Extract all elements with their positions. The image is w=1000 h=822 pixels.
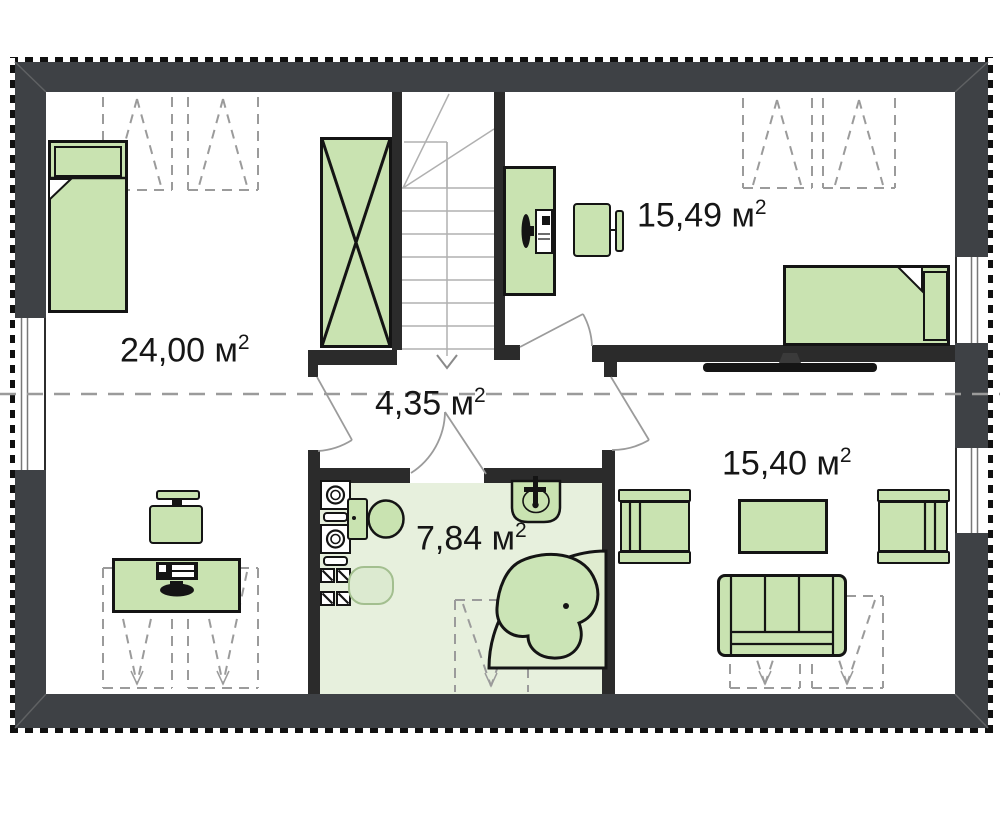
room-area-label-bathroom: 7,84 м2 xyxy=(416,520,527,555)
armchair-backrest-lines xyxy=(630,503,935,551)
room-area-label-bedroom-right: 15,49 м2 xyxy=(637,197,767,232)
area-value: 24,00 м xyxy=(120,331,238,369)
tile-diagonals xyxy=(323,571,349,604)
computer-icon-right-desk xyxy=(522,210,617,253)
door-swing-living-room xyxy=(611,377,649,450)
toilet-bowl xyxy=(352,501,404,538)
area-value: 15,40 м xyxy=(722,444,840,482)
sink xyxy=(512,476,560,522)
room-area-label-living-room: 15,40 м2 xyxy=(722,445,852,480)
window-right-lower xyxy=(956,448,978,533)
area-value: 4,35 м xyxy=(375,384,474,422)
area-value: 15,49 м xyxy=(637,196,755,234)
bed-left-blanket-fold xyxy=(49,178,127,200)
computer-icon-left-desk xyxy=(156,499,198,597)
sofa-cushion-lines xyxy=(731,576,833,655)
corner-bathtub xyxy=(489,551,606,668)
overlay-linework xyxy=(0,0,1000,822)
room-area-label-bedroom-left: 24,00 м2 xyxy=(120,332,250,367)
washing-machine-drums xyxy=(327,487,344,548)
door-swing-bedroom-right xyxy=(520,314,592,347)
tv-stand xyxy=(779,353,801,363)
area-value: 7,84 м xyxy=(416,519,515,557)
window-right-upper xyxy=(956,257,978,343)
ghost-fixture xyxy=(349,567,393,604)
room-area-label-hall: 4,35 м2 xyxy=(375,385,486,420)
floor-plan: 24,00 м2 15,49 м2 4,35 м2 7,84 м2 15,40 … xyxy=(0,0,1000,822)
door-swing-bedroom-left xyxy=(317,377,352,451)
wardrobe-cross-lines xyxy=(322,139,390,346)
bed-right-blanket-fold xyxy=(898,267,922,291)
